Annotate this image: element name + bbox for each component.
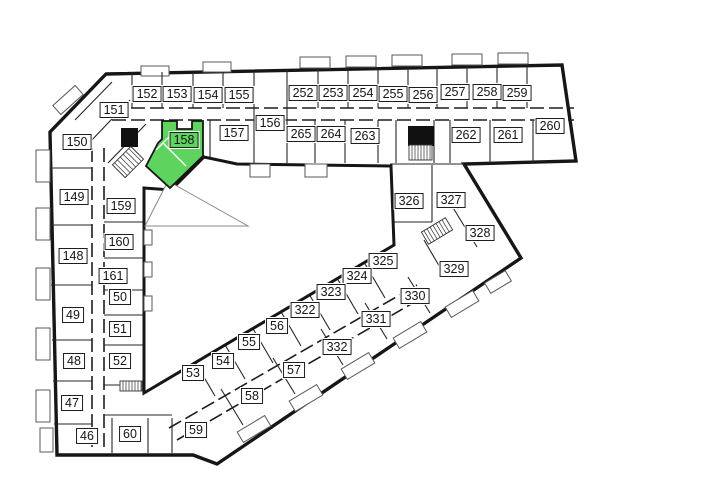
unit-label-258[interactable]: 258 (473, 84, 502, 100)
unit-label-328[interactable]: 328 (466, 225, 495, 241)
unit-label-254[interactable]: 254 (349, 85, 378, 101)
unit-label-59[interactable]: 59 (185, 422, 207, 438)
unit-label-152[interactable]: 152 (133, 86, 162, 102)
unit-label-153[interactable]: 153 (163, 86, 192, 102)
elevator-core (121, 128, 138, 147)
unit-label-332[interactable]: 332 (323, 339, 352, 355)
unit-label-58[interactable]: 58 (241, 388, 263, 404)
floor-plan-canvas (0, 0, 707, 500)
unit-label-262[interactable]: 262 (452, 127, 481, 143)
unit-label-159[interactable]: 159 (107, 198, 136, 214)
unit-label-156[interactable]: 156 (256, 115, 285, 131)
unit-label-256[interactable]: 256 (409, 87, 438, 103)
unit-label-329[interactable]: 329 (440, 261, 469, 277)
unit-label-151[interactable]: 151 (100, 102, 129, 118)
unit-label-56[interactable]: 56 (266, 318, 288, 334)
unit-label-253[interactable]: 253 (319, 85, 348, 101)
unit-label-263[interactable]: 263 (351, 128, 380, 144)
elevator-core (408, 126, 434, 146)
unit-label-52[interactable]: 52 (109, 353, 131, 369)
unit-label-323[interactable]: 323 (317, 284, 346, 300)
unit-label-50[interactable]: 50 (109, 289, 131, 305)
unit-label-252[interactable]: 252 (289, 85, 318, 101)
unit-label-49[interactable]: 49 (62, 307, 84, 323)
unit-label-322[interactable]: 322 (291, 302, 320, 318)
unit-label-257[interactable]: 257 (441, 84, 470, 100)
unit-label-155[interactable]: 155 (225, 87, 254, 103)
unit-label-158[interactable]: 158 (170, 132, 199, 148)
unit-label-51[interactable]: 51 (109, 321, 131, 337)
unit-label-149[interactable]: 149 (60, 189, 89, 205)
unit-label-47[interactable]: 47 (61, 395, 83, 411)
unit-label-331[interactable]: 331 (362, 311, 391, 327)
unit-label-154[interactable]: 154 (194, 87, 223, 103)
floor-plan: 150 149 148 49 48 47 46 151 159 160 161 … (0, 0, 707, 500)
unit-label-330[interactable]: 330 (401, 288, 430, 304)
unit-label-255[interactable]: 255 (379, 86, 408, 102)
unit-label-48[interactable]: 48 (63, 353, 85, 369)
unit-label-148[interactable]: 148 (59, 248, 88, 264)
unit-label-160[interactable]: 160 (105, 234, 134, 250)
unit-label-327[interactable]: 327 (437, 192, 466, 208)
unit-label-325[interactable]: 325 (369, 253, 398, 269)
unit-label-46[interactable]: 46 (76, 428, 98, 444)
unit-label-259[interactable]: 259 (503, 85, 532, 101)
unit-label-265[interactable]: 265 (287, 126, 316, 142)
unit-label-264[interactable]: 264 (317, 126, 346, 142)
unit-label-60[interactable]: 60 (119, 426, 141, 442)
unit-label-53[interactable]: 53 (182, 365, 204, 381)
stairs-icon (409, 145, 432, 160)
unit-label-260[interactable]: 260 (536, 118, 565, 134)
unit-label-326[interactable]: 326 (395, 193, 424, 209)
unit-label-57[interactable]: 57 (283, 362, 305, 378)
unit-label-54[interactable]: 54 (212, 353, 234, 369)
unit-label-324[interactable]: 324 (343, 268, 372, 284)
unit-label-157[interactable]: 157 (220, 125, 249, 141)
stairs-icon (120, 381, 142, 391)
unit-label-55[interactable]: 55 (238, 334, 260, 350)
unit-label-150[interactable]: 150 (63, 134, 92, 150)
unit-label-261[interactable]: 261 (494, 127, 523, 143)
unit-label-161[interactable]: 161 (99, 268, 128, 284)
